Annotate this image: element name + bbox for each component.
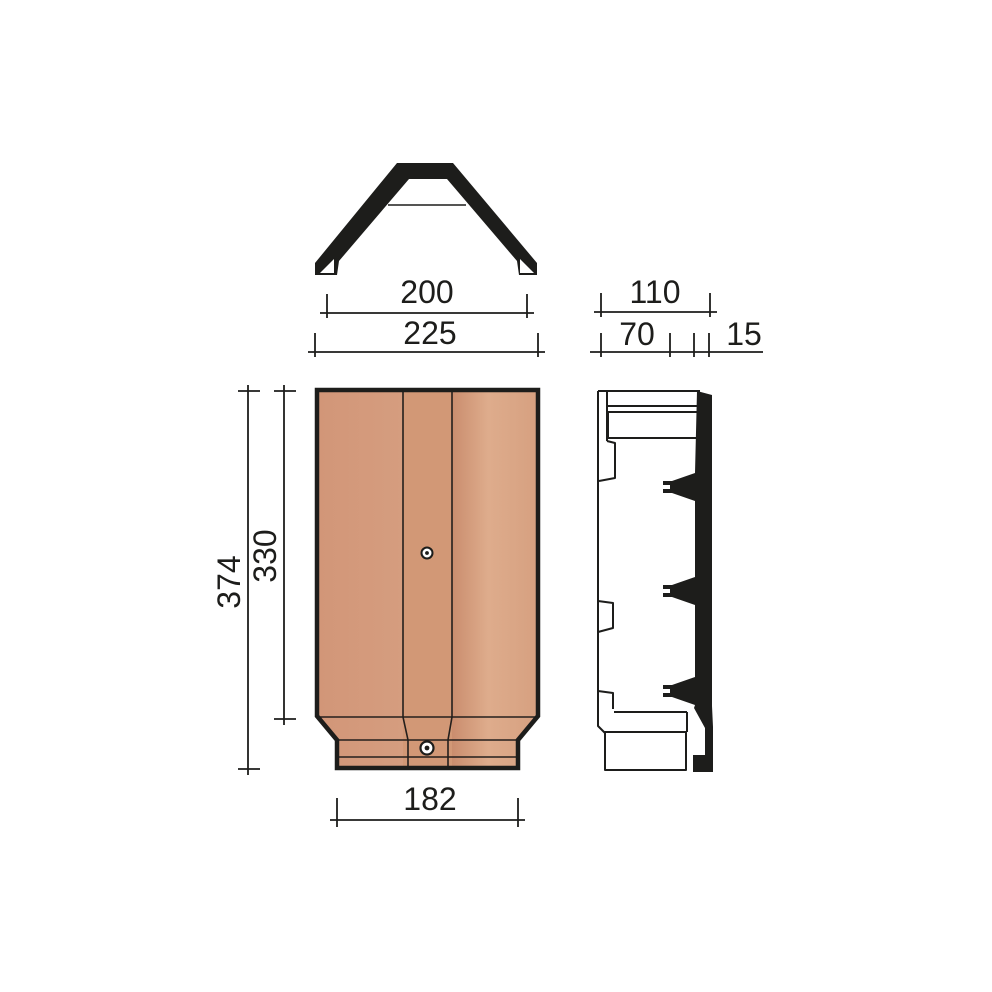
side-profile-view [598,391,713,772]
nail-hole-upper [422,548,433,559]
plan-fill-panels [317,390,538,768]
dimension-outer-width: 225 [308,315,545,357]
dim-label-110: 110 [629,274,680,310]
plan-panel-left [317,390,403,768]
plan-panel-right [452,390,538,768]
dim-label-200: 200 [400,274,453,310]
plan-panel-middle [403,390,452,768]
ridge-profile-silhouette [315,163,537,275]
front-profile-view [315,163,537,275]
side-left-edge [598,391,605,770]
side-lock-tab-a [599,441,615,481]
dim-label-15: 15 [726,316,762,352]
dimension-tail-width: 182 [330,781,525,827]
technical-drawing-canvas: 200 225 110 70 15 [0,0,992,992]
side-lock-tab-c [598,691,613,709]
dim-label-374: 374 [211,555,247,608]
side-lock-tab-b [598,601,613,632]
side-tail-step-line [614,712,687,732]
dim-label-70: 70 [619,316,655,352]
dim-label-330: 330 [247,529,283,582]
side-head-block [608,412,697,438]
dimension-body-length: 330 [247,385,296,725]
plan-view [317,390,538,768]
dim-label-225: 225 [403,315,456,351]
drawing-svg: 200 225 110 70 15 [0,0,992,992]
dimension-side-depth-total: 110 [594,274,717,317]
dim-label-182: 182 [403,781,456,817]
side-tail-block [605,732,686,770]
nail-hole-lower [421,742,434,755]
dimension-side-depth-front-and-rib: 70 15 [590,316,763,357]
dimension-inner-width: 200 [320,274,534,318]
